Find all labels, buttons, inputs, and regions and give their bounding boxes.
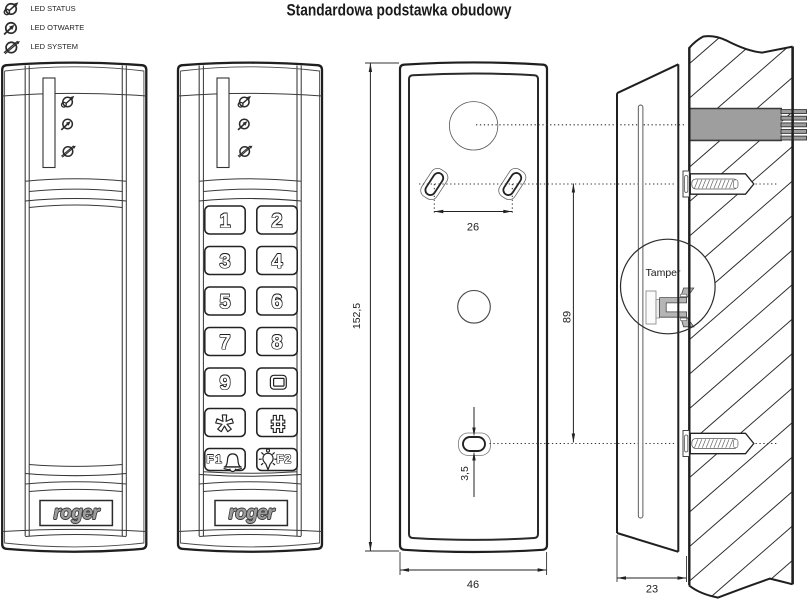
svg-text:LED OTWARTE: LED OTWARTE xyxy=(31,23,85,32)
svg-text:F1: F1 xyxy=(206,452,223,466)
svg-text:F2: F2 xyxy=(276,452,291,466)
svg-text:26: 26 xyxy=(467,222,479,234)
svg-text:9: 9 xyxy=(219,372,230,394)
svg-text:4: 4 xyxy=(271,251,283,273)
svg-text:roger: roger xyxy=(53,503,101,524)
svg-text:Standardowa podstawka obudowy: Standardowa podstawka obudowy xyxy=(287,2,513,20)
svg-text:46: 46 xyxy=(467,579,479,591)
svg-text:roger: roger xyxy=(228,503,276,524)
svg-text:7: 7 xyxy=(219,332,230,354)
svg-text:Tamper: Tamper xyxy=(645,267,681,279)
svg-text:8: 8 xyxy=(271,332,282,354)
svg-text:23: 23 xyxy=(646,584,658,596)
svg-text:LED STATUS: LED STATUS xyxy=(31,4,76,13)
svg-text:5: 5 xyxy=(219,291,230,313)
svg-text:1: 1 xyxy=(219,210,230,232)
svg-text:89: 89 xyxy=(561,311,573,323)
svg-text:2: 2 xyxy=(271,210,282,232)
svg-text:3: 3 xyxy=(219,251,230,273)
svg-text:3,5: 3,5 xyxy=(459,466,471,481)
svg-text:152,5: 152,5 xyxy=(351,303,363,329)
svg-text:6: 6 xyxy=(271,291,282,313)
svg-text:LED SYSTEM: LED SYSTEM xyxy=(31,42,79,51)
